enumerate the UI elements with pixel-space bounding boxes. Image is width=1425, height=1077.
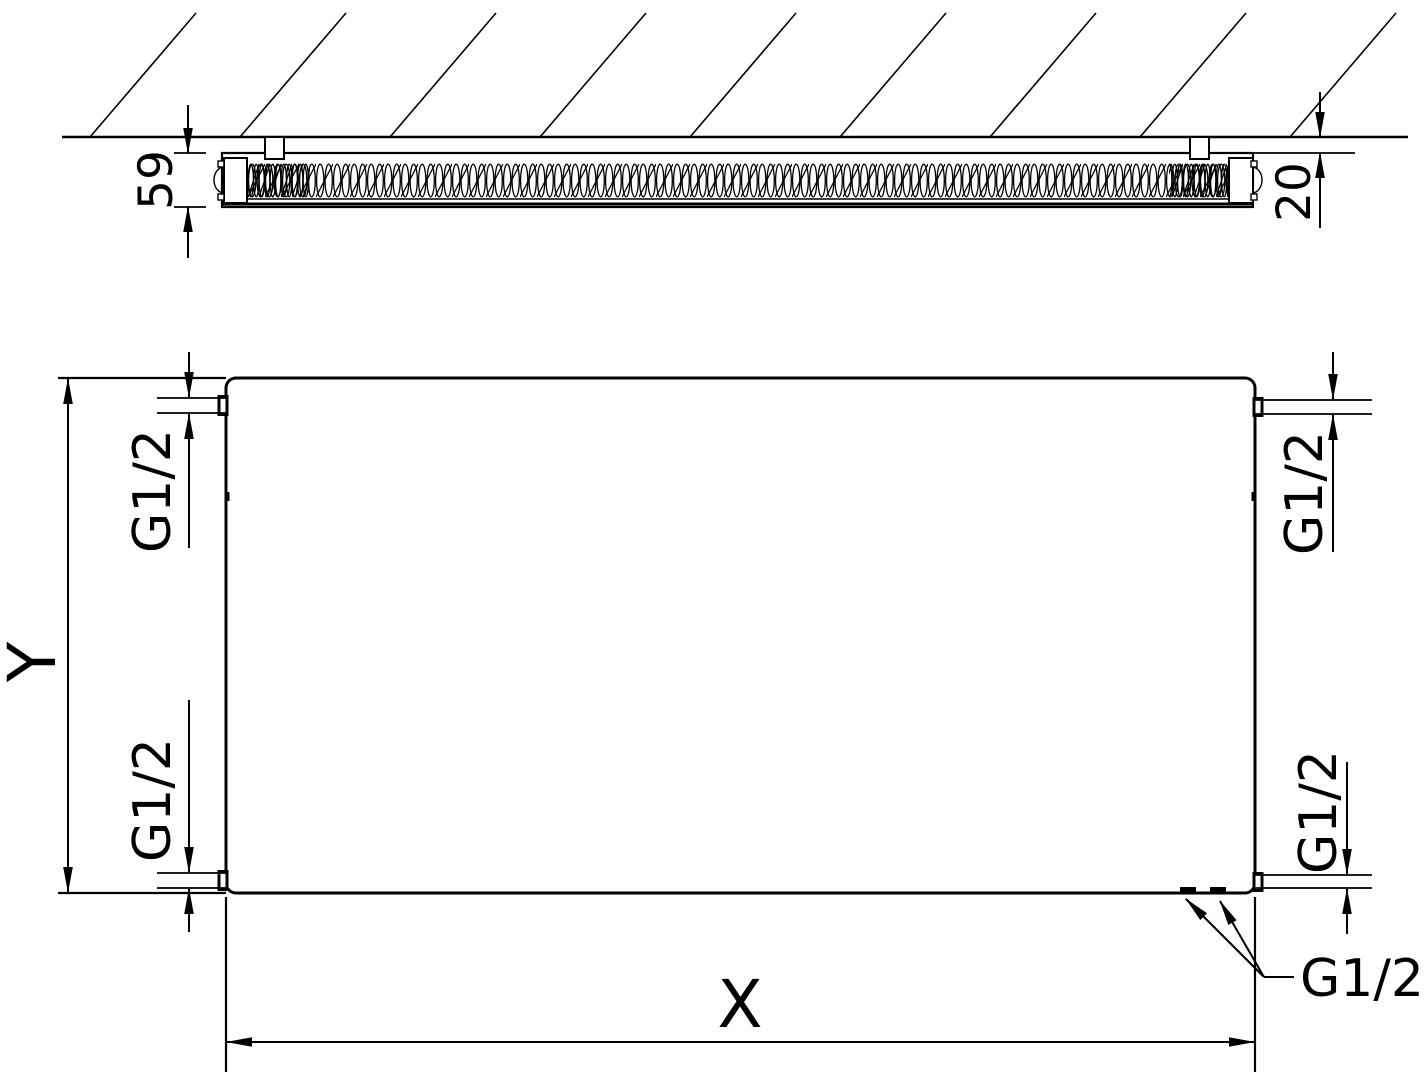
- conn-top-left-label: G1/2: [123, 429, 183, 553]
- wall-bracket-right: [1190, 137, 1209, 159]
- wall-gap-dim-label: 20: [1267, 162, 1322, 222]
- bottom-connection-leader: G1/2: [1186, 899, 1424, 1009]
- height-dim-label: Y: [0, 641, 71, 683]
- radiator-technical-drawing: 59 20 Y: [0, 0, 1425, 1077]
- radiator-cross-section: [214, 137, 1262, 207]
- conn-bottom-right-label: G1/2: [1289, 750, 1349, 874]
- conn-top-right-label: G1/2: [1275, 431, 1335, 555]
- drawing-canvas: 59 20 Y: [0, 0, 1425, 1077]
- radiator-front-panel: [226, 378, 1255, 893]
- left-end-cap: [214, 158, 247, 203]
- dimension-conn-bottom-left: G1/2: [123, 700, 226, 932]
- top-view-section: 59 20: [62, 13, 1408, 258]
- width-dim-label: X: [717, 966, 762, 1043]
- convector-fins: [248, 163, 1231, 198]
- convector-fins-right-dense: [1169, 163, 1231, 198]
- right-end-cap: [1229, 158, 1262, 203]
- dimension-depth: 59: [129, 105, 206, 258]
- stub-top-right: [1254, 399, 1262, 416]
- depth-dim-label: 59: [129, 150, 184, 210]
- wall-hatching: [90, 13, 1396, 137]
- dimension-width: X: [226, 897, 1255, 1072]
- dimension-conn-top-left: G1/2: [123, 352, 226, 553]
- stub-top-left: [219, 397, 227, 415]
- dimension-height: Y: [0, 378, 226, 893]
- stub-bottom-left: [219, 872, 227, 890]
- conn-bottom-left-label: G1/2: [123, 738, 183, 862]
- front-view-section: Y X G1/2 G1/2: [0, 352, 1424, 1072]
- dimension-wall-gap: 20: [1243, 92, 1355, 228]
- convector-fins-left-dense: [248, 163, 310, 198]
- conn-bottom-center-label: G1/2: [1300, 949, 1424, 1009]
- wall-bracket-left: [265, 137, 284, 159]
- dimension-conn-top-right: G1/2: [1255, 352, 1372, 555]
- dimension-conn-bottom-right: G1/2: [1255, 750, 1372, 934]
